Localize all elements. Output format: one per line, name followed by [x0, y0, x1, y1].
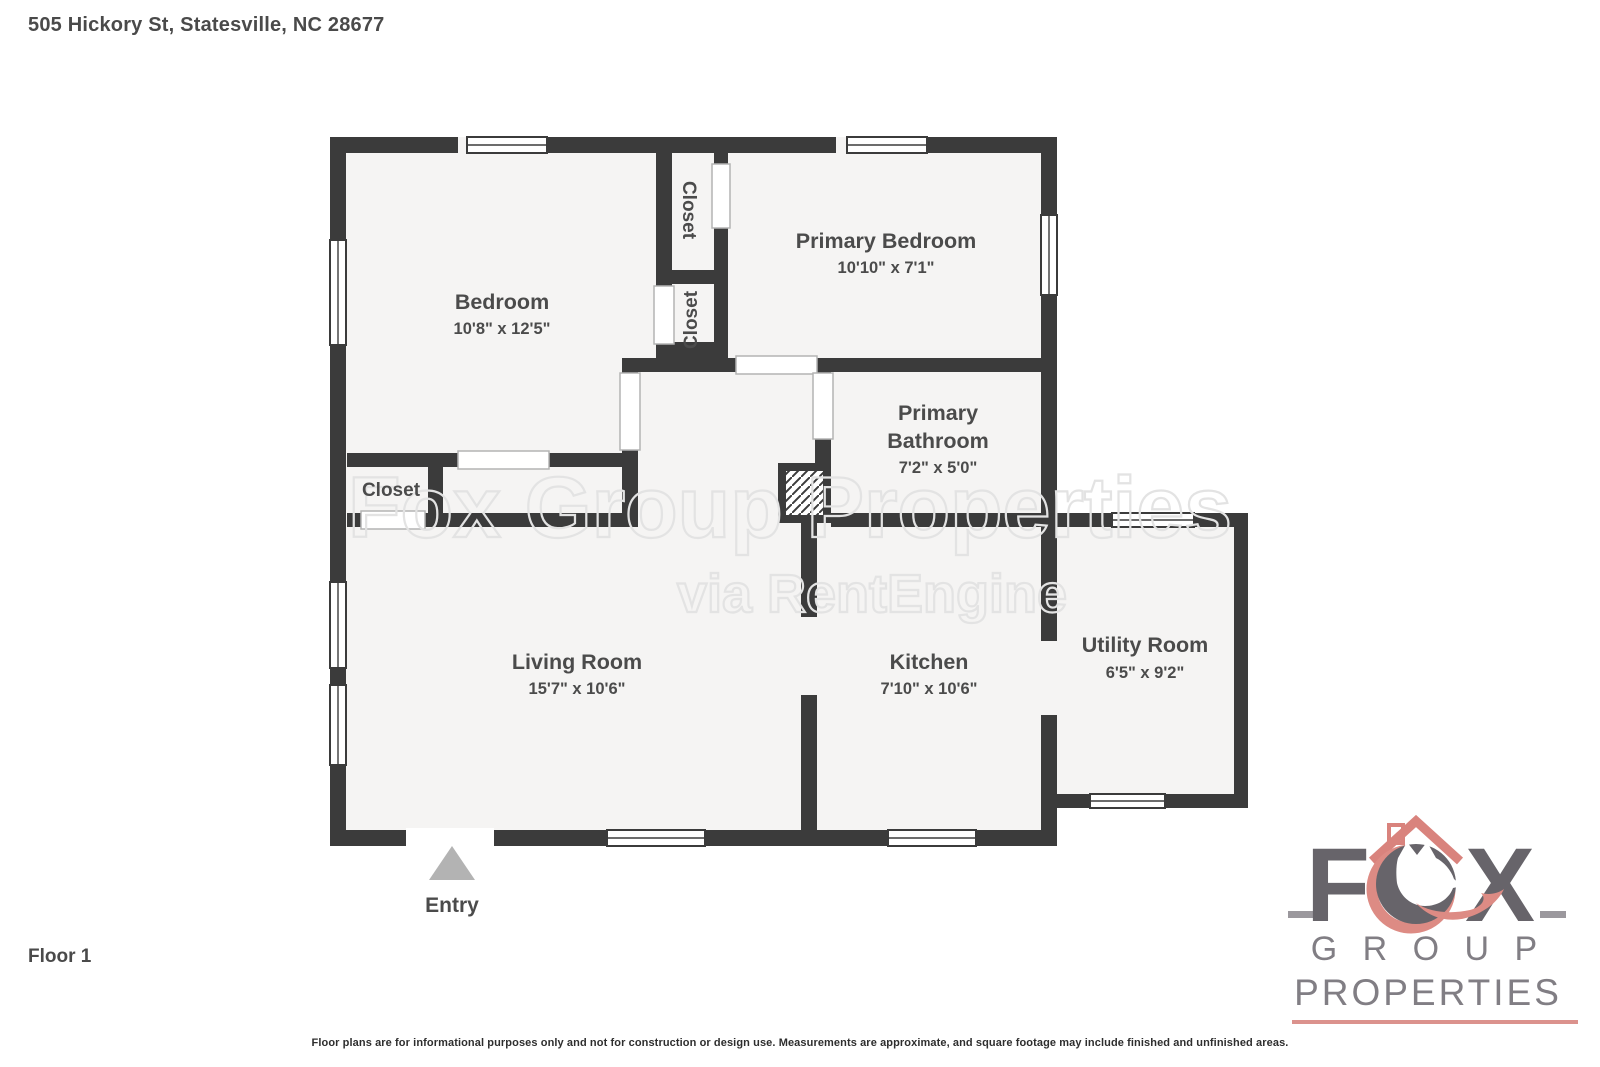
- primary-bedroom-door: [736, 356, 817, 374]
- living-room-label: Living Room: [512, 650, 642, 674]
- logo-fox-emblem: F X: [1288, 821, 1566, 944]
- kitchen-dims: 7'10" x 10'6": [881, 680, 978, 698]
- entry-triangle-icon: [429, 846, 475, 880]
- bedroom-label: Bedroom: [455, 290, 549, 314]
- logo-underline: [1292, 1020, 1578, 1024]
- bedroom-dims: 10'8" x 12'5": [454, 320, 551, 338]
- kitchen-label: Kitchen: [890, 650, 969, 674]
- primary-bathroom-label-2: Bathroom: [887, 429, 989, 453]
- utility-floor: [1041, 513, 1248, 808]
- bedroom-hall-door: [620, 373, 640, 450]
- entry-label: Entry: [425, 894, 479, 917]
- upper-closet-door: [712, 164, 730, 228]
- primary-bedroom-dims: 10'10" x 7'1": [838, 259, 935, 277]
- logo-properties-text: PROPERTIES: [1294, 972, 1562, 1013]
- primary-bathroom-dims: 7'2" x 5'0": [899, 459, 978, 477]
- living-room-dims: 15'7" x 10'6": [529, 680, 626, 698]
- lower-closet-door: [654, 286, 674, 344]
- logo-letter-x: X: [1465, 827, 1535, 944]
- upper-closet-label: Closet: [678, 181, 699, 240]
- watermark-line2: via RentEngine: [677, 564, 1067, 624]
- logo-dash-right: [1540, 911, 1566, 918]
- fox-group-properties-logo: F X G R O U P PROPERTIES: [1268, 795, 1598, 1035]
- logo-group-text: G R O U P: [1311, 930, 1545, 968]
- entry-door-opening: [406, 828, 494, 848]
- entry-marker: Entry: [425, 846, 479, 917]
- utility-room-dims: 6'5" x 9'2": [1106, 664, 1185, 682]
- primary-bathroom-label-1: Primary: [898, 401, 978, 425]
- primary-bedroom-label: Primary Bedroom: [796, 229, 976, 253]
- logo-letter-f: F: [1306, 827, 1370, 944]
- disclaimer-text: Floor plans are for informational purpos…: [0, 1037, 1600, 1049]
- lower-closet-label: Closet: [681, 290, 702, 349]
- left-closet-label: Closet: [362, 480, 421, 501]
- watermark-line1: Fox Group Properties: [348, 460, 1232, 556]
- floor-label: Floor 1: [28, 946, 91, 968]
- utility-room-label: Utility Room: [1082, 633, 1209, 657]
- bathroom-door: [813, 373, 833, 439]
